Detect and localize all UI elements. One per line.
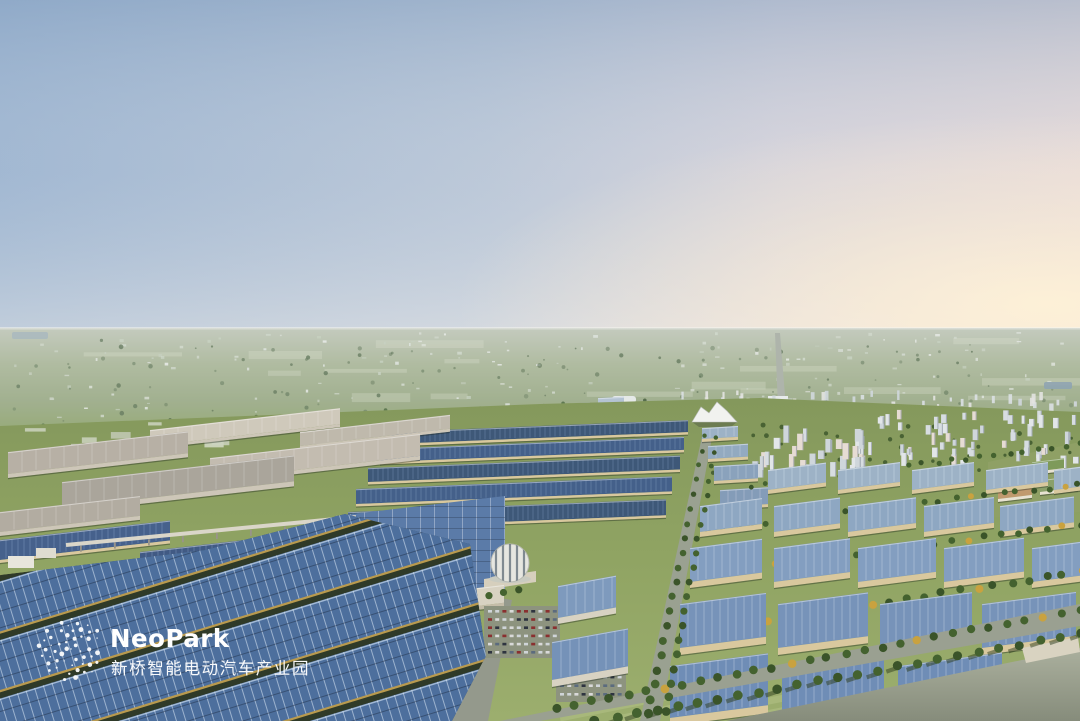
tree — [763, 521, 769, 527]
district-tree — [1068, 451, 1071, 454]
tree — [712, 450, 717, 455]
tower-shade — [944, 442, 945, 449]
tree — [675, 636, 683, 644]
logo-dot — [60, 629, 63, 632]
parked-car — [538, 610, 542, 613]
tree — [693, 550, 699, 556]
tree — [658, 651, 666, 659]
tree — [913, 659, 922, 668]
tower-shade — [950, 433, 951, 442]
tree — [670, 666, 678, 674]
tower-shade — [824, 450, 825, 459]
parked-car — [517, 643, 521, 646]
tree — [678, 681, 687, 690]
tower-shade — [1006, 441, 1007, 448]
parked-car — [546, 626, 550, 629]
tree — [668, 593, 675, 600]
tower-shade — [860, 457, 861, 467]
logo-dot — [65, 641, 67, 643]
tower-shade — [965, 413, 966, 420]
parked-car — [610, 684, 614, 687]
logo-dot — [70, 648, 71, 649]
logo-dot — [44, 648, 48, 652]
tree — [684, 521, 690, 527]
logo-dot — [46, 661, 50, 665]
logo-dot — [63, 660, 64, 661]
tree — [998, 530, 1005, 537]
logo-dot — [65, 633, 70, 638]
tree — [1019, 450, 1024, 455]
tower-shade — [977, 429, 978, 440]
tree — [680, 550, 686, 556]
tower-shade — [976, 411, 977, 420]
parked-car — [502, 651, 506, 654]
district-tree — [836, 434, 840, 438]
tree — [754, 688, 764, 698]
parked-car — [546, 635, 550, 638]
parked-car — [589, 684, 593, 687]
walkway-support — [250, 530, 252, 536]
tree — [913, 636, 921, 644]
tree — [587, 696, 596, 705]
tree — [853, 670, 862, 679]
parked-car — [546, 651, 550, 654]
district-tree — [976, 445, 980, 449]
tower-shade — [1058, 418, 1059, 428]
parked-car — [517, 610, 521, 613]
logo-dot — [73, 675, 78, 680]
parked-car — [502, 626, 506, 629]
logo-subtitle: 新桥智能电动汽车产业园 — [111, 659, 310, 678]
tower-shade — [964, 438, 965, 447]
tree — [702, 507, 708, 513]
district-tree — [761, 423, 766, 428]
parked-car — [495, 626, 499, 629]
logo-dot — [83, 671, 86, 674]
parked-car — [553, 635, 557, 638]
tree — [936, 588, 944, 596]
tree — [1039, 614, 1047, 622]
tree — [709, 464, 714, 469]
tree — [1002, 489, 1008, 495]
logo-dot — [76, 668, 80, 672]
logo-dot — [74, 658, 77, 661]
parked-car — [524, 610, 528, 613]
tree — [679, 622, 686, 629]
walkway-support — [216, 533, 218, 539]
tree — [662, 707, 671, 716]
tree — [749, 485, 754, 490]
tree — [922, 499, 928, 505]
tree — [981, 492, 987, 498]
logo-dot — [82, 655, 86, 659]
tree — [683, 593, 690, 600]
logo-dot — [58, 643, 61, 646]
tree — [873, 667, 882, 676]
tree — [1064, 444, 1070, 450]
tree — [644, 709, 653, 718]
tree — [1044, 572, 1052, 580]
white-service-building — [36, 548, 56, 558]
tree — [663, 622, 671, 630]
tower-shade — [796, 446, 797, 456]
tower-shade — [901, 422, 902, 430]
tree — [792, 680, 802, 690]
logo-dot — [56, 667, 58, 669]
parked-car — [603, 684, 607, 687]
parked-car — [553, 626, 557, 629]
tree — [822, 653, 830, 661]
tree — [696, 676, 705, 685]
tree — [552, 704, 561, 713]
parked-car — [517, 635, 521, 638]
parked-car — [488, 610, 492, 613]
tree — [1003, 620, 1011, 628]
parked-car — [517, 626, 521, 629]
tree — [977, 453, 982, 458]
district-tree — [764, 433, 769, 438]
tower-shade — [1045, 448, 1046, 455]
tree — [772, 684, 782, 694]
tree — [1056, 633, 1065, 642]
tree — [788, 659, 797, 668]
district-tree — [906, 424, 911, 429]
logo-dot — [73, 637, 77, 641]
tree — [981, 532, 988, 539]
tree — [813, 676, 822, 685]
tower-shade — [934, 433, 935, 445]
logo-dot — [49, 656, 51, 658]
parked-car — [531, 651, 535, 654]
logo-dot — [87, 647, 91, 651]
tree — [763, 481, 768, 486]
tree — [604, 694, 613, 703]
tree — [994, 644, 1003, 653]
tree — [975, 648, 984, 657]
tree — [861, 646, 869, 654]
tree — [733, 690, 743, 700]
tower-shade — [1033, 419, 1034, 426]
tower-shade — [930, 425, 931, 434]
parked-car — [510, 610, 514, 613]
parked-car — [510, 643, 514, 646]
tree — [966, 537, 973, 544]
logo-wordmark: NeoPark — [110, 624, 230, 653]
tree — [653, 667, 661, 675]
parked-car — [546, 618, 550, 621]
parked-car — [495, 651, 499, 654]
district-tree — [931, 459, 934, 462]
tree — [937, 461, 942, 466]
tree — [1036, 636, 1045, 645]
tree — [698, 522, 704, 528]
white-service-building — [8, 556, 34, 568]
tower-shade — [841, 439, 842, 449]
tree — [694, 536, 700, 542]
tree — [500, 589, 507, 596]
tree — [673, 701, 683, 711]
parked-car — [488, 635, 492, 638]
parked-car — [524, 618, 528, 621]
tower-shade — [802, 434, 803, 450]
logo-dot — [37, 643, 42, 648]
district-tree — [888, 437, 892, 441]
tree — [843, 650, 851, 658]
tree — [694, 477, 699, 482]
tree — [1044, 526, 1051, 533]
tower-shade — [937, 448, 938, 458]
logo-dot — [59, 651, 64, 656]
tree — [949, 629, 957, 637]
parked-car — [488, 618, 492, 621]
district-tree — [824, 431, 828, 435]
logo-dot — [48, 669, 51, 672]
tree — [653, 706, 663, 716]
tower-shade — [863, 430, 864, 445]
parked-car — [596, 684, 600, 687]
tower-shade — [780, 438, 781, 449]
tree — [705, 493, 710, 498]
tower-shade — [1070, 432, 1071, 440]
tree — [1058, 609, 1066, 617]
parked-car — [502, 610, 506, 613]
tree — [693, 698, 703, 708]
tree — [570, 701, 579, 710]
tree — [930, 632, 938, 640]
tower-shade — [835, 462, 836, 477]
tower-shade — [763, 456, 764, 470]
tree — [1025, 577, 1033, 585]
logo-dot — [95, 650, 100, 655]
tree — [896, 639, 904, 647]
tree — [1036, 446, 1041, 451]
district-tree — [751, 434, 755, 438]
tree — [485, 592, 492, 599]
logo-dot — [71, 618, 73, 620]
tree — [1020, 616, 1028, 624]
tree — [691, 491, 696, 496]
logo-dot — [86, 637, 91, 642]
parked-car — [488, 643, 492, 646]
logo-dot — [87, 624, 89, 626]
tree — [968, 493, 974, 499]
tent-shadow — [692, 422, 737, 427]
logo-dot — [74, 643, 78, 647]
tree — [1015, 530, 1022, 537]
walkway-support — [182, 536, 184, 542]
far-light-block — [148, 422, 162, 425]
logo-dot — [71, 664, 73, 666]
parked-car — [531, 635, 535, 638]
tower-shade — [871, 442, 872, 455]
parked-car — [546, 610, 550, 613]
logo-dot — [76, 622, 79, 625]
parked-car — [510, 618, 514, 621]
logo-dot — [88, 630, 91, 633]
tower-shade — [901, 410, 902, 419]
tree — [641, 686, 650, 695]
parked-car — [538, 626, 542, 629]
logo-dot — [96, 637, 97, 638]
tree — [646, 695, 655, 704]
tower-shade — [909, 449, 910, 455]
tree — [967, 625, 975, 633]
tree — [1026, 526, 1033, 533]
tree — [659, 637, 667, 645]
logo-dot — [88, 662, 93, 667]
tower-shade — [1047, 444, 1048, 454]
tower-shade — [947, 424, 948, 434]
logo-dot — [79, 627, 84, 632]
tree — [767, 664, 776, 673]
parked-car — [510, 651, 514, 654]
parked-car — [553, 610, 557, 613]
tree — [842, 508, 848, 514]
tower-shade — [769, 452, 770, 465]
parked-car — [531, 626, 535, 629]
tower-shade — [1078, 457, 1079, 464]
tree — [949, 456, 954, 461]
logo-dot — [72, 629, 75, 632]
parked-car — [517, 651, 521, 654]
tree — [673, 650, 681, 658]
parked-car — [524, 643, 528, 646]
parked-car — [502, 635, 506, 638]
walkway-support — [148, 539, 150, 545]
tree — [991, 453, 996, 458]
logo-dot — [54, 650, 57, 653]
parked-car — [574, 684, 578, 687]
parked-car — [510, 635, 514, 638]
parked-car — [538, 643, 542, 646]
tree — [956, 585, 964, 593]
scene-canvas: NeoPark 新桥智能电动汽车产业园 — [0, 0, 1080, 721]
tree — [687, 506, 693, 512]
tower-shade — [831, 440, 832, 453]
logo-dot — [41, 655, 43, 657]
tree — [1031, 488, 1037, 494]
logo-dot — [68, 625, 69, 626]
tower-shade — [788, 426, 789, 443]
tree — [1008, 451, 1013, 456]
logo-dot — [80, 635, 82, 637]
parked-car — [538, 651, 542, 654]
district-tree — [977, 468, 981, 472]
tree — [749, 666, 758, 675]
district-tree — [1003, 454, 1006, 457]
logo-dot — [49, 636, 52, 639]
parked-car — [546, 643, 550, 646]
tower-shade — [1075, 415, 1076, 425]
logo-dot — [43, 639, 45, 641]
tree — [953, 651, 962, 660]
tree — [954, 495, 960, 501]
tree — [1063, 484, 1069, 490]
tree — [673, 579, 680, 586]
tree — [806, 656, 815, 665]
logo-dot — [91, 671, 92, 672]
tree — [1057, 571, 1065, 579]
tree — [933, 655, 942, 664]
tower-shade — [983, 426, 984, 434]
tree — [515, 586, 522, 593]
tower-shade — [1024, 416, 1025, 424]
parked-car — [488, 626, 492, 629]
parked-car — [582, 684, 586, 687]
parked-car — [495, 643, 499, 646]
walkway-support — [114, 543, 116, 549]
parked-car — [531, 618, 535, 621]
parked-car — [553, 618, 557, 621]
logo-dot — [45, 629, 49, 633]
tree — [869, 601, 877, 609]
parked-car — [495, 610, 499, 613]
tree — [713, 673, 722, 682]
tree — [733, 670, 742, 679]
parked-car — [574, 693, 578, 696]
parked-car — [510, 626, 514, 629]
tower-shade — [1065, 456, 1066, 469]
tree — [666, 607, 673, 614]
tree — [706, 479, 711, 484]
tower-shade — [848, 443, 849, 459]
tree — [1009, 579, 1017, 587]
tree — [702, 433, 706, 437]
tree — [691, 564, 697, 570]
tree — [988, 581, 996, 589]
parked-car — [531, 610, 535, 613]
parked-car — [538, 635, 542, 638]
far-light-block — [111, 432, 131, 439]
tree — [1058, 522, 1065, 529]
tree — [700, 449, 705, 454]
tower-shade — [912, 452, 913, 459]
parking-lot — [484, 606, 560, 658]
tree — [918, 460, 923, 465]
tree — [1074, 481, 1080, 487]
parked-car — [567, 693, 571, 696]
parked-car — [589, 693, 593, 696]
tower-shade — [1015, 432, 1016, 440]
logo-dot — [64, 647, 69, 652]
tower-shade — [974, 450, 975, 456]
parked-car — [524, 635, 528, 638]
parked-car — [488, 651, 492, 654]
tree — [686, 579, 693, 586]
tree — [665, 693, 674, 702]
logo-dot — [63, 678, 66, 681]
tree — [1012, 488, 1018, 494]
parked-car — [517, 618, 521, 621]
tree — [632, 708, 642, 718]
tower-shade — [946, 414, 947, 423]
logo-dot — [55, 659, 58, 662]
tower-shade — [974, 442, 975, 450]
tower-shade — [942, 423, 943, 435]
tower-shade — [955, 449, 956, 456]
tree — [833, 673, 842, 682]
tree — [680, 608, 687, 615]
district-tree — [868, 457, 872, 461]
parked-car — [618, 684, 622, 687]
parked-car — [502, 643, 506, 646]
logo-dot — [90, 655, 92, 657]
tree — [1015, 641, 1024, 650]
tree — [948, 537, 955, 544]
tower-shade — [956, 440, 957, 446]
tree — [963, 457, 968, 462]
tree — [667, 680, 675, 688]
